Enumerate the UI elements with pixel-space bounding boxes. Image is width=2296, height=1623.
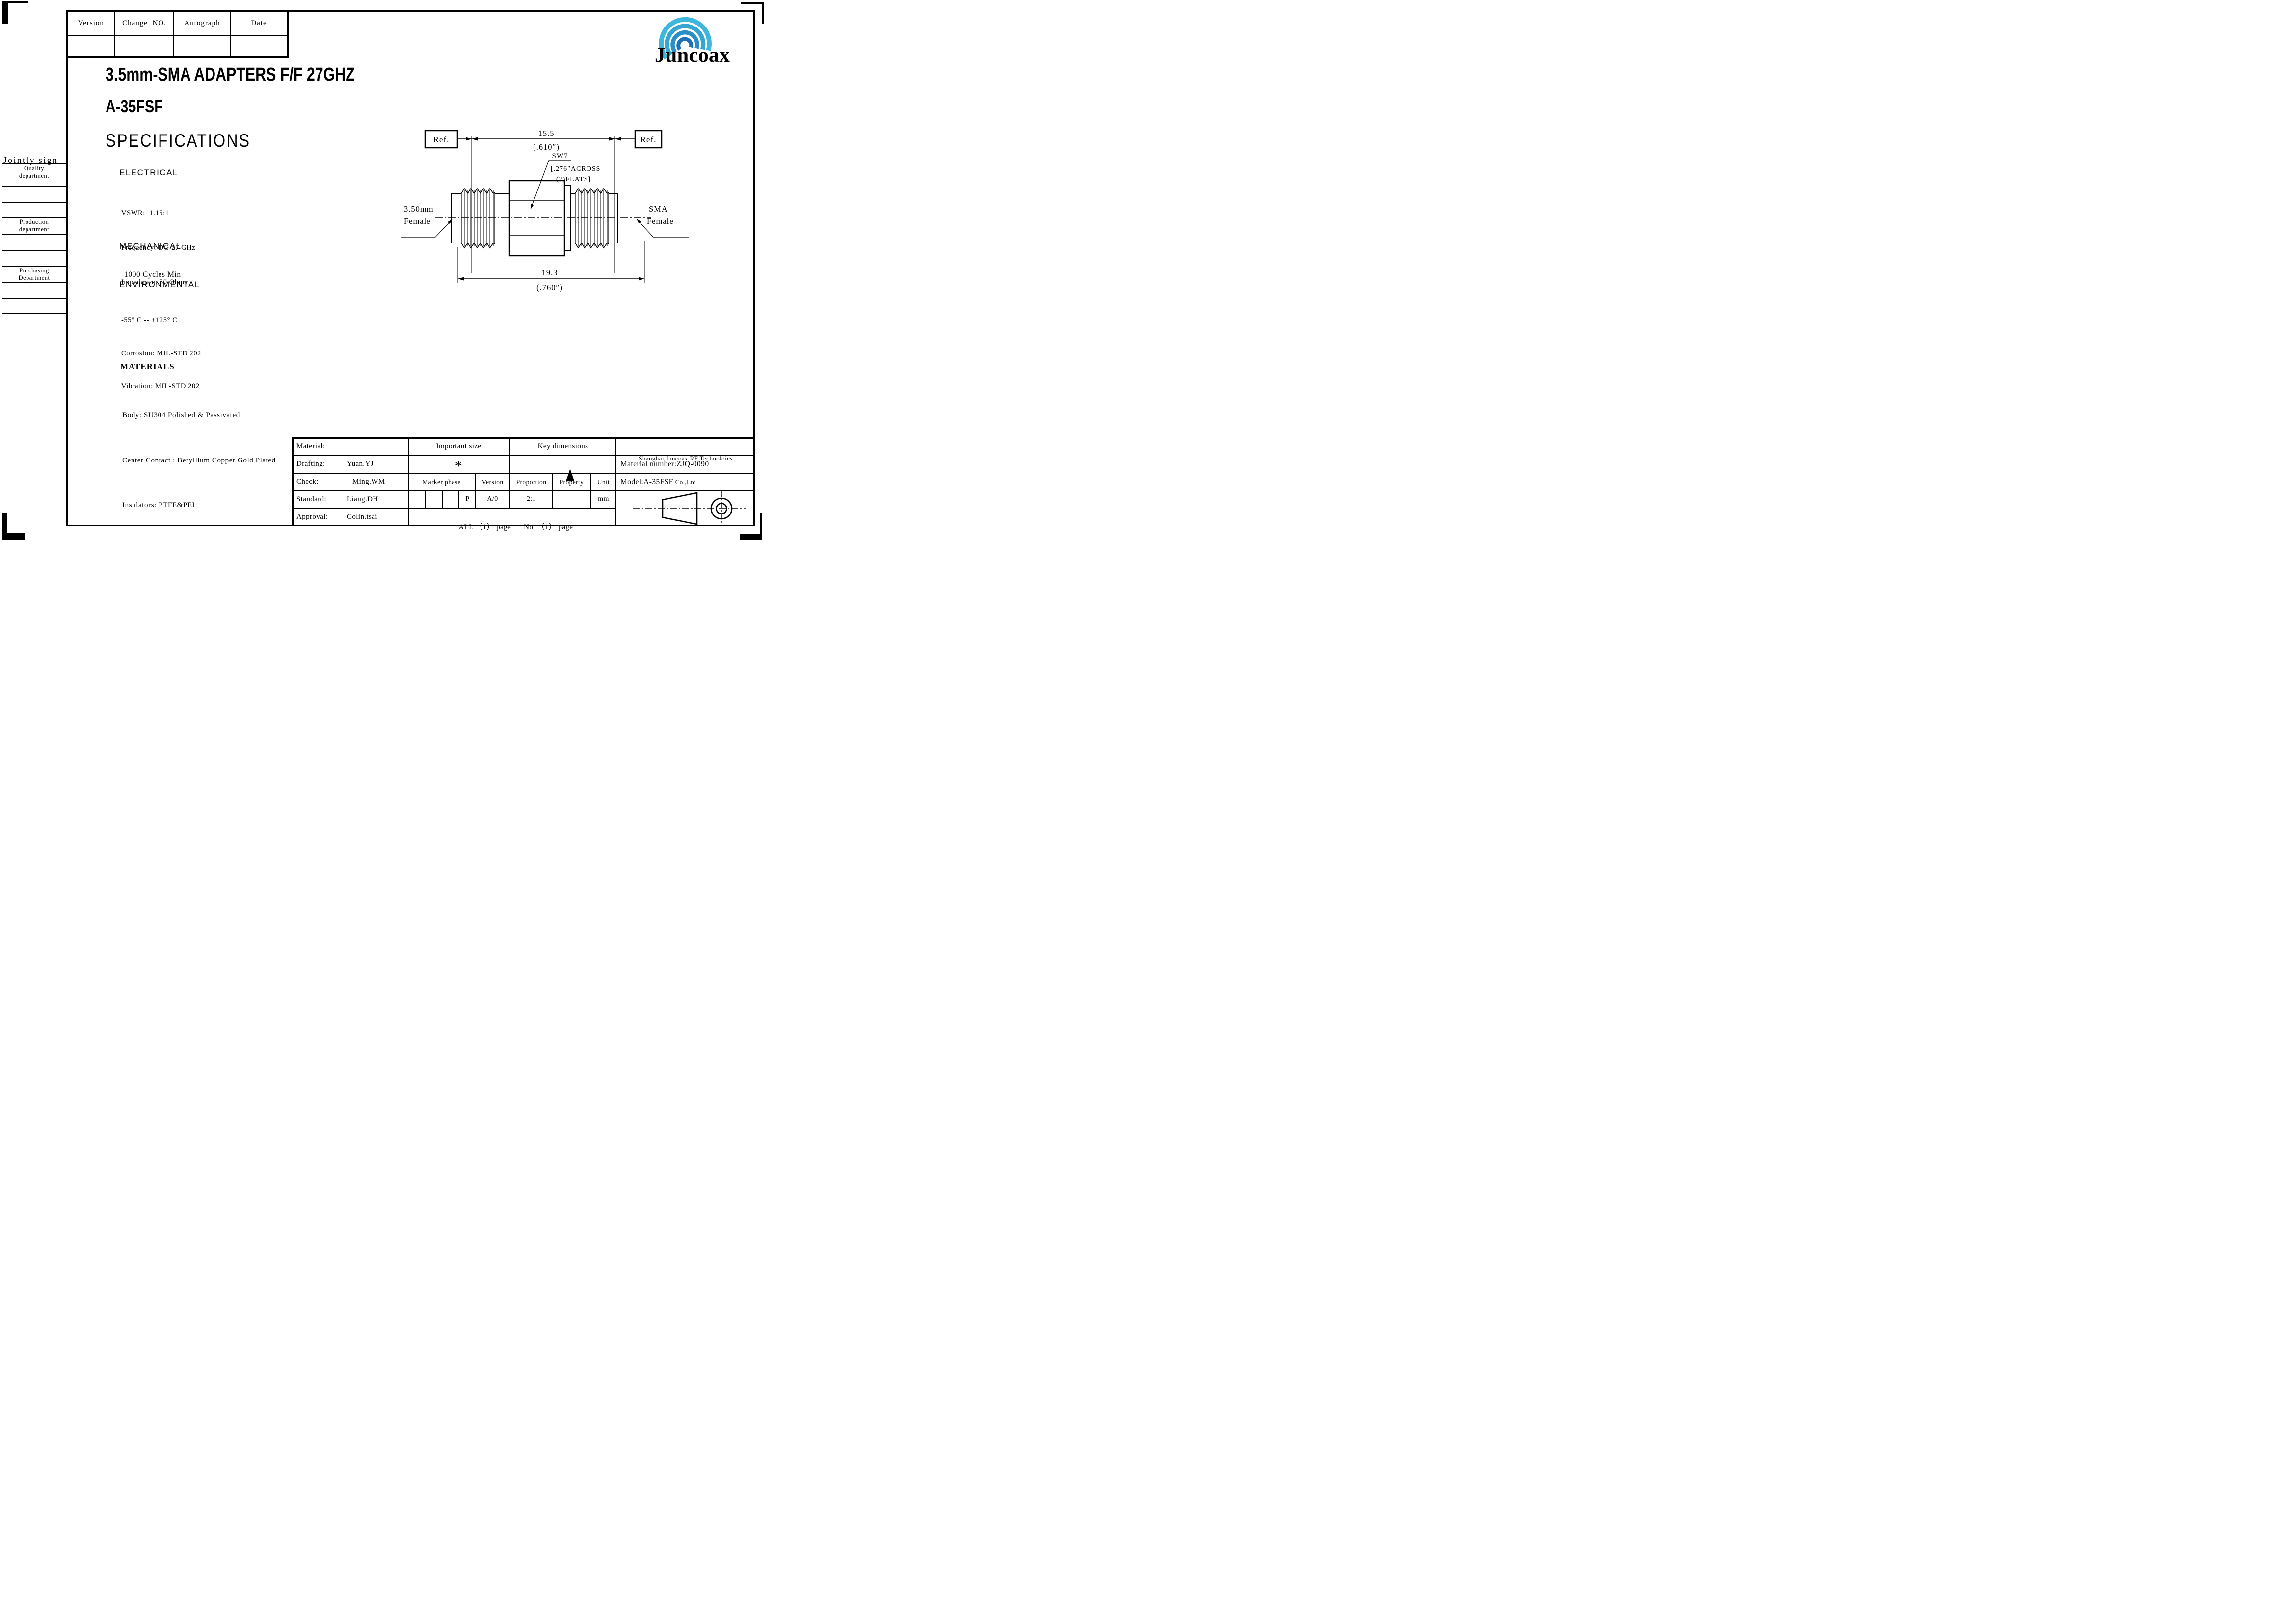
unit-header: Unit xyxy=(591,478,616,486)
drafting-label: Drafting: xyxy=(296,460,325,468)
revision-cell-empty xyxy=(231,36,288,57)
material-label: Material: xyxy=(296,442,325,451)
wrench-note-1: [.276″ACROSS xyxy=(551,165,600,173)
logo-text: Juncoax xyxy=(655,44,730,66)
mechanical-lines: 1000 Cycles Min xyxy=(124,253,181,297)
important-size-symbol: * xyxy=(408,458,509,475)
standard-label: Standard: xyxy=(296,495,326,504)
approval-label: Approval: xyxy=(296,513,328,521)
ref-label-right: Ref. xyxy=(641,135,657,144)
materials-lines: Body: SU304 Polished & Passivated Center… xyxy=(122,378,276,541)
corner-mark-bottom-right xyxy=(740,534,762,540)
marker-phase-value: P xyxy=(459,495,476,503)
model-title: A-35FSF xyxy=(106,96,163,117)
revision-cell-empty xyxy=(68,36,115,57)
mechanical-heading: MECHANICAL xyxy=(119,242,181,251)
sidebar-item-production-department: Productiondepartment xyxy=(2,218,66,233)
left-port-label-2: Female xyxy=(404,216,431,226)
approval-value: Colin.tsai xyxy=(347,513,377,521)
environmental-heading: ENVIRONMENTAL xyxy=(119,280,200,290)
wrench-size-label: SW7 xyxy=(552,152,568,160)
revision-header-change-no: Change NO. xyxy=(115,12,174,36)
corner-mark-bottom-left-v xyxy=(2,513,7,540)
materials-heading: MATERIALS xyxy=(120,362,175,372)
page-title: 3.5mm-SMA ADAPTERS F/F 27GHZ xyxy=(106,64,355,85)
dim-overall-mm: 19.3 xyxy=(542,268,558,277)
dim-body-inch: (.610″) xyxy=(533,142,560,152)
check-value: Ming.WM xyxy=(352,478,385,486)
datasheet-page: Version Change NO. Autograph Date Jointl… xyxy=(0,0,765,541)
material-number: Material number:ZJQ-0090 xyxy=(620,460,709,469)
adapter-technical-drawing: Ref. Ref. 15.5 (.610″) SW7 [.276″ACROSS … xyxy=(393,125,697,295)
corner-mark-top-left-v xyxy=(2,1,8,24)
revision-header-version: Version xyxy=(68,12,115,36)
standard-value: Liang.DH xyxy=(347,495,378,504)
sidebar-item-quality-department: Qualitydepartment xyxy=(2,165,66,180)
unit-value: mm xyxy=(591,495,616,503)
marker-phase-header: Marker phase xyxy=(408,478,475,486)
proportion-header: Proportion xyxy=(510,478,552,486)
wrench-note-2: (2)FLATS] xyxy=(556,176,591,183)
key-dimensions-header: Key dimensions xyxy=(510,442,615,451)
important-size-header: Important size xyxy=(408,442,509,451)
specifications-title: SPECIFICATIONS xyxy=(106,131,250,151)
page-count: ALL （1） pageNo. （1） page xyxy=(408,513,616,540)
proportion-value: 2:1 xyxy=(510,495,552,503)
dim-body-mm: 15.5 xyxy=(538,129,555,138)
version-value: A/0 xyxy=(475,495,510,503)
company-logo: Juncoax xyxy=(654,17,752,68)
revision-cell-empty xyxy=(174,36,231,57)
check-label: Check: xyxy=(296,478,319,486)
right-port-label-1: SMA xyxy=(649,204,668,214)
electrical-heading: ELECTRICAL xyxy=(119,168,178,178)
projection-symbol-icon xyxy=(628,490,751,526)
revision-cell-empty xyxy=(115,36,174,57)
dim-overall-inch: (.760″) xyxy=(536,283,563,292)
corner-mark-top-right-v xyxy=(762,2,764,24)
property-header: Property xyxy=(553,478,590,486)
version-header: Version xyxy=(475,478,510,486)
key-dimension-triangle-icon: ▲ xyxy=(510,459,615,495)
revision-header-autograph: Autograph xyxy=(174,12,231,36)
left-port-label-1: 3.50mm xyxy=(404,204,434,214)
corner-mark-bottom-right-v xyxy=(760,513,762,539)
revision-header-date: Date xyxy=(231,12,288,36)
revision-table: Version Change NO. Autograph Date xyxy=(66,10,289,58)
drafting-value: Yuan.YJ xyxy=(347,460,374,468)
model-number: Model:A-35FSF xyxy=(620,478,673,487)
ref-label-left: Ref. xyxy=(433,135,450,144)
sidebar-item-purchasing-department: PurchasingDepartment xyxy=(2,267,66,282)
right-port-label-2: Female xyxy=(647,216,674,226)
corner-mark-top-right xyxy=(741,2,764,4)
